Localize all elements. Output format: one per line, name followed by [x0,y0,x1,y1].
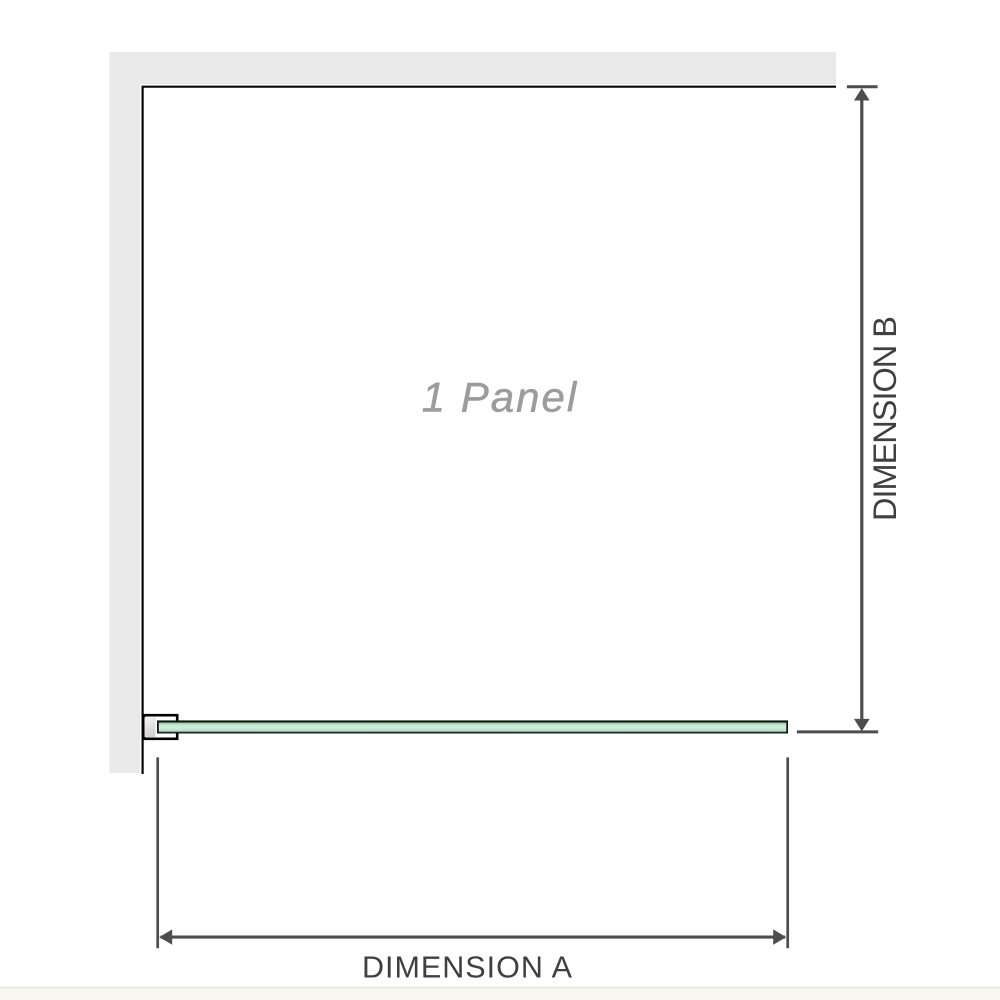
svg-text:DIMENSION B: DIMENSION B [867,317,903,521]
svg-text:DIMENSION A: DIMENSION A [362,950,573,984]
svg-text:1 Panel: 1 Panel [422,374,578,421]
